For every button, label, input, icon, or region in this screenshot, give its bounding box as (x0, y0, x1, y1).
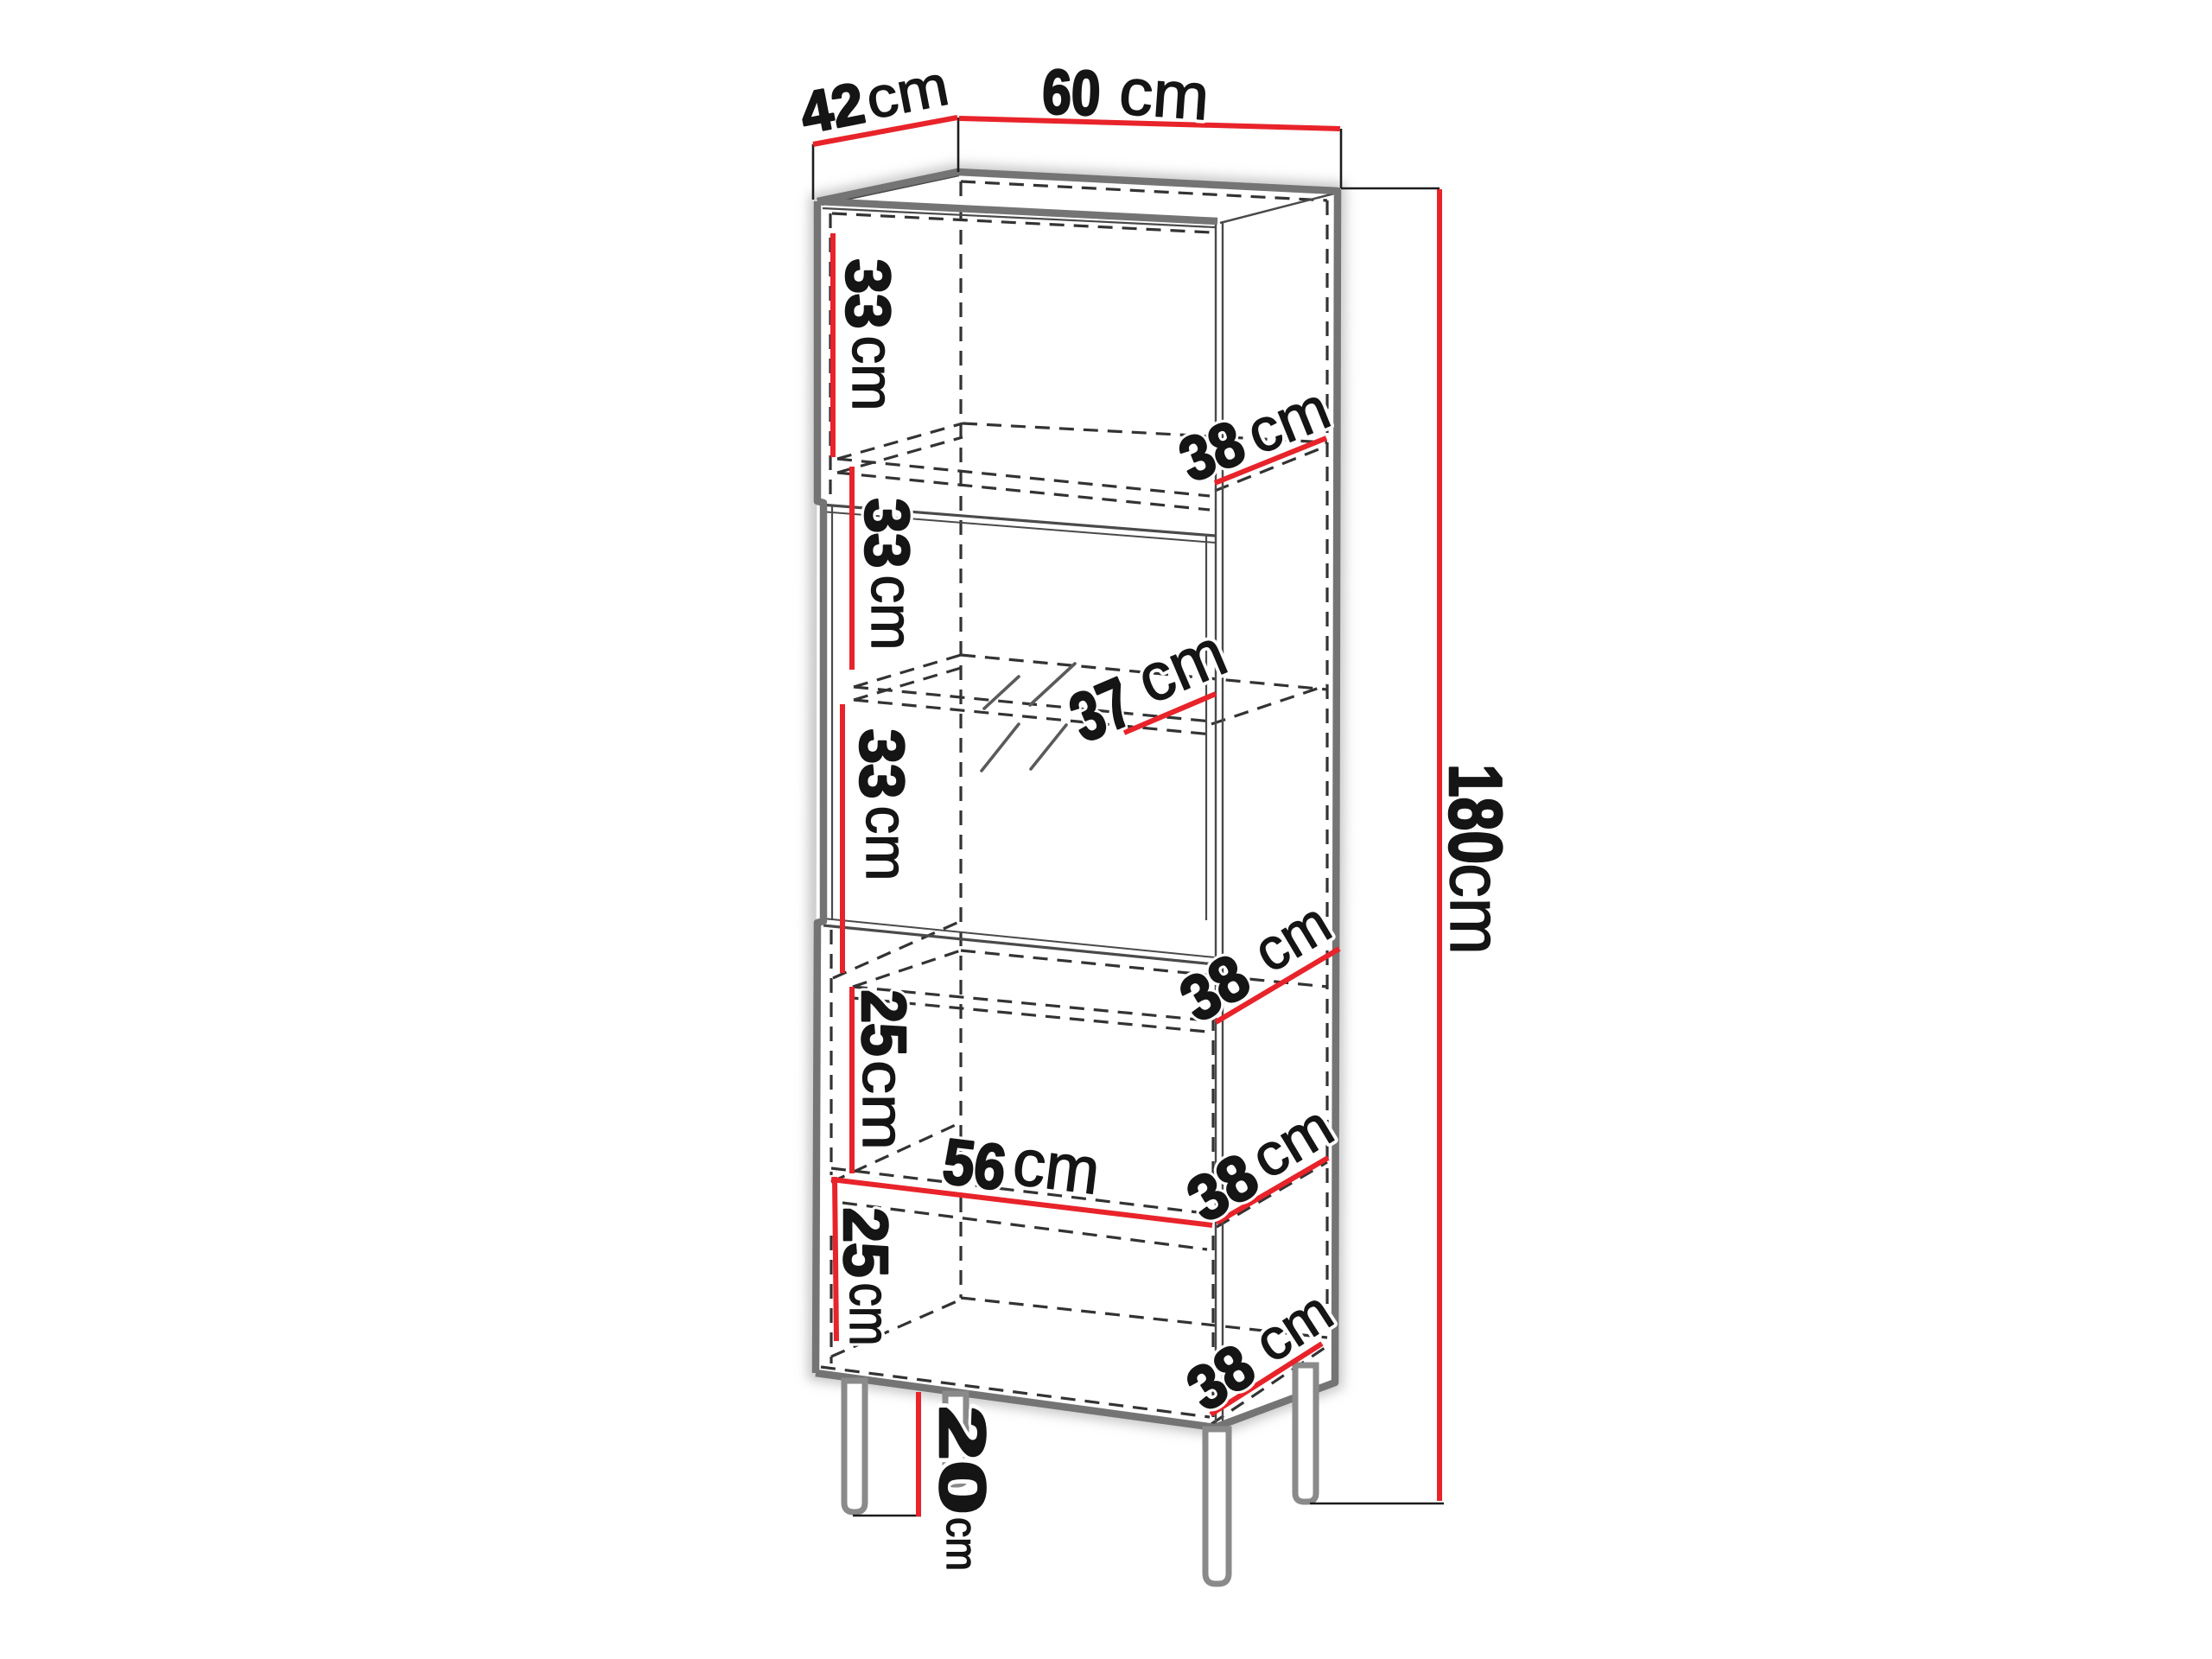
svg-text:cm: cm (854, 806, 919, 881)
svg-text:56: 56 (939, 1125, 1010, 1204)
svg-text:cm: cm (859, 575, 925, 651)
svg-text:25: 25 (849, 990, 918, 1057)
svg-text:20: 20 (926, 1406, 999, 1515)
svg-text:42: 42 (795, 71, 869, 147)
svg-text:cm: cm (1117, 54, 1212, 134)
svg-text:33: 33 (847, 729, 916, 799)
svg-text:cm: cm (838, 1283, 902, 1346)
svg-text:25: 25 (830, 1208, 899, 1278)
svg-text:cm: cm (938, 1517, 986, 1571)
svg-text:180: 180 (1433, 764, 1516, 864)
svg-text:33: 33 (852, 499, 921, 569)
svg-text:33: 33 (833, 259, 902, 329)
svg-text:cm: cm (1435, 863, 1516, 955)
svg-text:cm: cm (840, 336, 906, 411)
svg-text:cm: cm (850, 1060, 916, 1150)
svg-text:60: 60 (1041, 57, 1102, 129)
svg-text:cm: cm (1009, 1125, 1104, 1209)
